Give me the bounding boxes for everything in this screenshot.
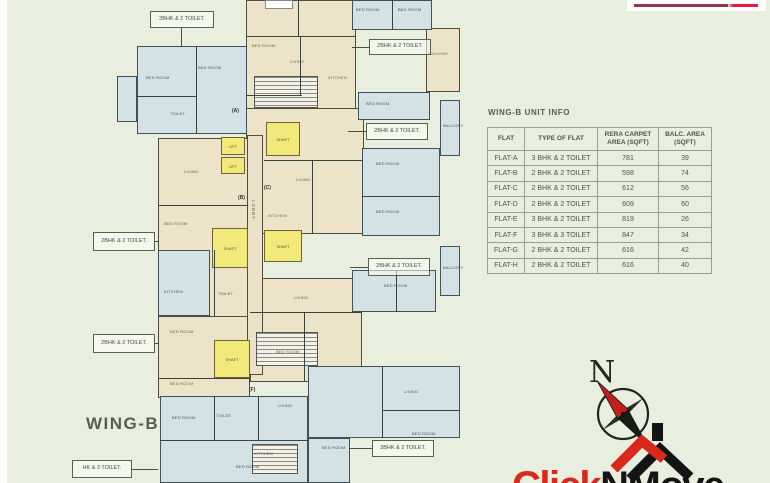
callout-2bhk-left-lower: 2BHK & 2 TOILET. <box>93 334 155 353</box>
cell-flat: FLAT-E <box>488 212 525 227</box>
callout-2bhk-top-right: 2BHK & 2 TOILET. <box>369 39 431 55</box>
room-label: KITCHEN <box>268 214 287 218</box>
cell-carpet: 616 <box>598 258 659 273</box>
left-bath-cluster <box>158 250 210 316</box>
wall <box>304 312 305 382</box>
wall <box>214 396 215 440</box>
right-balcony-strip-2 <box>440 246 460 296</box>
shaft-3: SHAFT <box>264 230 302 262</box>
cell-balc: 34 <box>659 227 712 242</box>
disclaimer-banner <box>627 0 766 11</box>
room-label: LIVING <box>290 60 304 64</box>
cell-type: 3 BHK & 2 TOILET <box>525 151 598 166</box>
table-row: FLAT-D 2 BHK & 2 TOILET 609 60 <box>488 197 712 212</box>
cell-flat: FLAT-F <box>488 227 525 242</box>
room-label: BED ROOM <box>198 66 221 70</box>
flat-marker-f: (F) <box>249 387 255 393</box>
room-label: BED ROOM <box>412 432 435 436</box>
col-type: TYPE OF FLAT <box>525 128 598 151</box>
callout-2bhk-right-lower: 2BHK & 2 TOILET. <box>368 258 430 276</box>
room-label: BED ROOM <box>170 330 193 334</box>
unit-info-title: WING-B UNIT INFO <box>488 108 570 117</box>
shaft-4-label: SHAFT <box>215 357 249 362</box>
wall <box>196 46 197 134</box>
room-label: KITCHEN <box>164 290 183 294</box>
top-left-flat <box>137 46 247 134</box>
wall <box>214 250 215 316</box>
right-bedrooms <box>362 148 440 236</box>
wall <box>258 396 259 440</box>
cell-flat: FLAT-G <box>488 243 525 258</box>
cell-balc: 39 <box>659 151 712 166</box>
floor-plan-page: LOBBY LIFT LIFT SHAFT SHAFT SHAFT SHAFT <box>0 0 770 483</box>
wall <box>382 410 460 411</box>
flat-marker-b: (B) <box>238 195 245 201</box>
room-label: BED ROOM <box>172 416 195 420</box>
flat-marker-c: (C) <box>264 185 271 191</box>
room-label: BED ROOM <box>376 210 399 214</box>
cell-flat: FLAT-C <box>488 181 525 196</box>
shaft-1-label: SHAFT <box>267 137 299 142</box>
top-left-notch <box>117 76 137 122</box>
cell-carpet: 598 <box>598 166 659 181</box>
table-header-row: FLAT TYPE OF FLAT RERA CARPET AREA (SQFT… <box>488 128 712 151</box>
logo-part-click: Click <box>512 464 600 483</box>
room-label: BED ROOM <box>170 382 193 386</box>
wall <box>250 312 362 313</box>
wall <box>362 196 440 197</box>
wall <box>160 440 308 441</box>
shaft-2: SHAFT <box>212 228 248 268</box>
room-label: BED ROOM <box>366 102 389 106</box>
room-label: BALCONY <box>428 52 449 56</box>
room-label: BALCONY <box>443 124 464 128</box>
room-label: LIVING <box>278 404 292 408</box>
cell-flat: FLAT-H <box>488 258 525 273</box>
room-label: BED ROOM <box>356 8 379 12</box>
wall <box>298 0 299 36</box>
table-row: FLAT-A 3 BHK & 2 TOILET 781 39 <box>488 151 712 166</box>
room-label: BED ROOM <box>376 162 399 166</box>
north-letter: N <box>589 355 615 390</box>
table-row: FLAT-C 2 BHK & 2 TOILET 612 56 <box>488 181 712 196</box>
balcony-column <box>426 28 460 92</box>
room-label: KITCHEN <box>254 452 273 456</box>
room-label: BED ROOM <box>164 222 187 226</box>
shaft-1: SHAFT <box>266 122 300 156</box>
unit-info-table: FLAT TYPE OF FLAT RERA CARPET AREA (SQFT… <box>487 127 712 274</box>
lift-2-label: LIFT <box>222 164 244 169</box>
wall <box>137 96 197 97</box>
callout-hk-bottom-left: HK & 3 TOILET. <box>72 460 132 478</box>
callout-leader <box>155 241 159 242</box>
callout-leader <box>350 448 372 449</box>
wall <box>300 36 301 96</box>
room-label: TOILET <box>170 112 185 116</box>
duct-box <box>265 0 293 9</box>
cell-type: 2 BHK & 2 TOILET <box>525 258 598 273</box>
room-label: LIVING <box>296 178 310 182</box>
wall <box>382 366 383 438</box>
shaft-2-label: SHAFT <box>213 246 247 251</box>
room-label: LIVING <box>404 390 418 394</box>
logo-wordmark: ClickNMove <box>512 464 724 483</box>
cell-type: 2 BHK & 2 TOILET <box>525 197 598 212</box>
flat-marker-a: (A) <box>232 108 239 114</box>
room-label: TOILET <box>216 414 231 418</box>
col-balc: BALC. AREA (SQFT) <box>659 128 712 151</box>
cell-carpet: 609 <box>598 197 659 212</box>
cell-balc: 74 <box>659 166 712 181</box>
cell-carpet: 819 <box>598 212 659 227</box>
room-label: LIVING <box>184 170 198 174</box>
room-label: BALCONY <box>443 266 464 270</box>
lift-2: LIFT <box>221 157 245 174</box>
staircase-top <box>254 76 318 108</box>
callout-3bhk-top-left: 3BHK & 2 TOILET. <box>150 11 214 28</box>
callout-leader <box>132 469 158 470</box>
room-label: BED ROOM <box>276 350 299 354</box>
cell-carpet: 781 <box>598 151 659 166</box>
wall <box>396 270 397 312</box>
cell-balc: 26 <box>659 212 712 227</box>
right-room-upper <box>358 92 430 120</box>
cell-carpet: 616 <box>598 243 659 258</box>
staircase-bottom <box>252 444 298 474</box>
cell-carpet: 612 <box>598 181 659 196</box>
lift-1-label: LIFT <box>222 144 244 149</box>
cell-balc: 42 <box>659 243 712 258</box>
disclaimer-text-illegible <box>634 4 758 7</box>
room-label: BED ROOM <box>398 8 421 12</box>
cell-type: 2 BHK & 2 TOILET <box>525 166 598 181</box>
cell-flat: FLAT-A <box>488 151 525 166</box>
lobby-label: LOBBY <box>251 200 256 220</box>
right-rooms-mid <box>352 270 436 312</box>
callout-leader <box>155 343 159 344</box>
room-label: BED ROOM <box>252 44 275 48</box>
right-balcony-strip <box>440 100 460 156</box>
room-label: BED ROOM <box>146 76 169 80</box>
callout-leader <box>348 131 366 132</box>
callout-2bhk-left-upper: 2BHK & 2 TOILET. <box>93 232 155 251</box>
wall <box>158 378 250 379</box>
room-label: TOILET <box>218 292 233 296</box>
cell-balc: 40 <box>659 258 712 273</box>
table-row: FLAT-H 2 BHK & 2 TOILET 616 40 <box>488 258 712 273</box>
cell-carpet: 847 <box>598 227 659 242</box>
wing-title: WING-B <box>86 414 159 434</box>
callout-leader <box>181 28 182 46</box>
callout-3bhk-bottom-right: 3BHK & 2 TOILET. <box>372 440 434 457</box>
room-label: BED ROOM <box>236 465 259 469</box>
wall <box>312 160 313 234</box>
room-label: LIVING <box>294 296 308 300</box>
cell-flat: FLAT-B <box>488 166 525 181</box>
room-label: KITCHEN <box>328 76 347 80</box>
shaft-4: SHAFT <box>214 340 250 378</box>
flat-c-area <box>246 108 364 234</box>
room-label: BED ROOM <box>384 284 407 288</box>
lift-1: LIFT <box>221 137 245 155</box>
wall <box>246 36 356 37</box>
callout-leader <box>352 47 369 48</box>
callout-leader <box>350 267 368 268</box>
wall <box>392 0 393 30</box>
wall <box>264 160 362 161</box>
cell-type: 2 BHK & 2 TOILET <box>525 243 598 258</box>
col-carpet: RERA CARPET AREA (SQFT) <box>598 128 659 151</box>
logo-part-nmove: NMove <box>600 464 724 483</box>
cell-type: 2 BHK & 2 TOILET <box>525 181 598 196</box>
cell-type: 3 BHK & 2 TOILET <box>525 212 598 227</box>
cell-flat: FLAT-D <box>488 197 525 212</box>
wall <box>246 95 302 96</box>
cell-balc: 60 <box>659 197 712 212</box>
shaft-3-label: SHAFT <box>265 244 301 249</box>
cell-type: 3 BHK & 3 TOILET <box>525 227 598 242</box>
room-label: BED ROOM <box>322 446 345 450</box>
table-row: FLAT-G 2 BHK & 2 TOILET 616 42 <box>488 243 712 258</box>
table-row: FLAT-E 3 BHK & 2 TOILET 819 26 <box>488 212 712 227</box>
bottom-right-flat <box>308 366 460 438</box>
cell-balc: 56 <box>659 181 712 196</box>
wall <box>158 205 248 206</box>
table-row: FLAT-F 3 BHK & 3 TOILET 847 34 <box>488 227 712 242</box>
table-row: FLAT-B 2 BHK & 2 TOILET 598 74 <box>488 166 712 181</box>
callout-2bhk-right-upper: 2BHK & 2 TOILET. <box>366 123 428 140</box>
col-flat: FLAT <box>488 128 525 151</box>
